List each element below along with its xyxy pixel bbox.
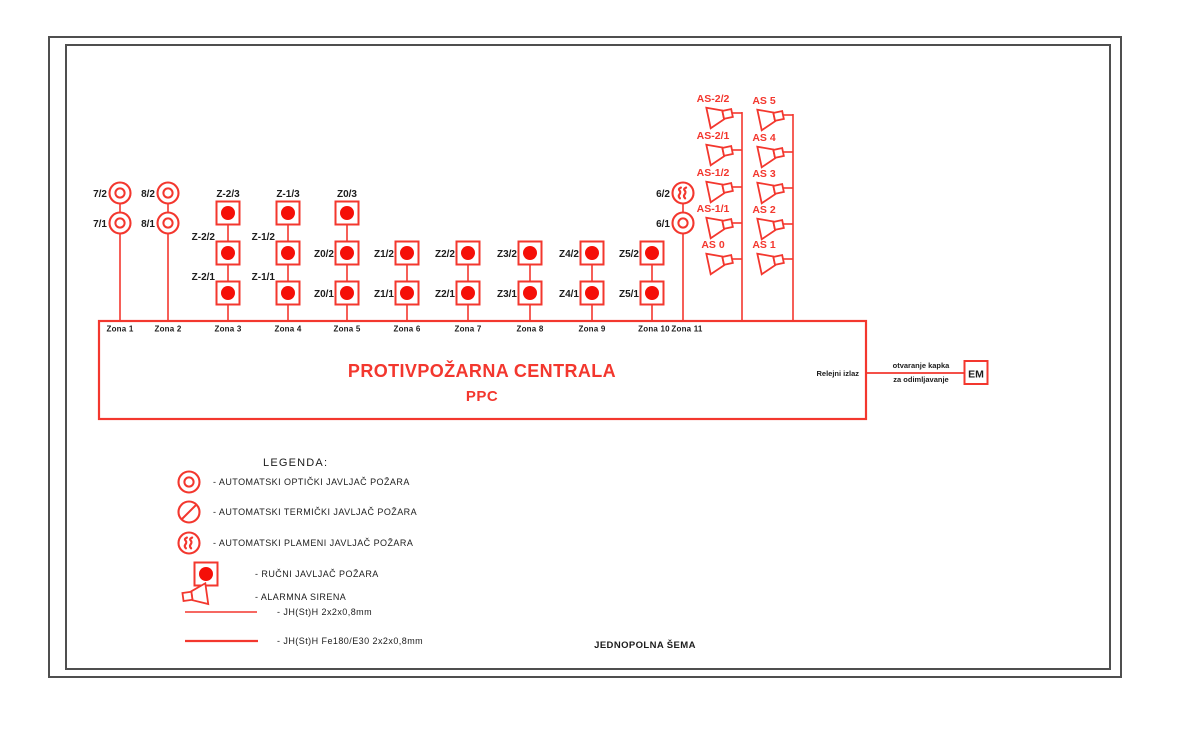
device-label: 8/1 [141, 219, 155, 230]
em-device-label: EM [968, 369, 984, 381]
device-label: Z-1/1 [252, 272, 276, 283]
device-label: Z4/2 [559, 249, 579, 260]
manual-call-point-icon [277, 242, 300, 265]
device-label: Z-2/1 [192, 272, 216, 283]
siren-bus-2: AS 5AS 4AS 3AS 2AS 1 [752, 95, 793, 321]
zone-zona-7: Z2/2Z2/1Zona 7 [435, 242, 482, 334]
siren-icon [757, 178, 785, 204]
siren-bus-1: AS-2/2AS-2/1AS-1/2AS-1/1AS 0 [697, 93, 742, 321]
manual-call-point-icon [336, 202, 359, 225]
optical-detector-icon [179, 472, 200, 493]
zone-zona-1: 7/27/1Zona 1 [93, 183, 134, 334]
device-label: 7/2 [93, 189, 107, 200]
optical-detector-icon [673, 213, 694, 234]
manual-call-point-icon [217, 282, 240, 305]
device-label: Z-1/2 [252, 232, 276, 243]
siren-label: AS 5 [752, 95, 776, 107]
zone-label: Zona 9 [579, 325, 606, 334]
siren-icon [757, 142, 785, 168]
drawing-sheet: 7/27/1Zona 18/28/1Zona 2Z-2/3Z-2/2Z-2/1Z… [0, 0, 1200, 746]
siren-icon [706, 177, 734, 203]
thermal-detector-icon [179, 502, 200, 523]
manual-call-point-icon [641, 242, 664, 265]
legend-title: LEGENDA: [263, 457, 328, 469]
device-label: 6/2 [656, 189, 670, 200]
zone-zona-2: 8/28/1Zona 2 [141, 183, 182, 334]
legend-item: - JH(St)H 2x2x0,8mm [185, 607, 372, 617]
legend-text: - AUTOMATSKI OPTIČKI JAVLJAČ POŽARA [213, 477, 410, 487]
siren-label: AS-2/1 [697, 130, 730, 142]
manual-call-point-icon [641, 282, 664, 305]
zone-label: Zona 7 [455, 325, 482, 334]
device-label: Z3/2 [497, 249, 517, 260]
zone-label: Zona 10 [638, 325, 670, 334]
zone-zona-9: Z4/2Z4/1Zona 9 [559, 242, 606, 334]
device-label: Z-2/3 [216, 189, 240, 200]
manual-call-point-icon [581, 282, 604, 305]
zone-label: Zona 6 [394, 325, 421, 334]
manual-call-point-icon [457, 242, 480, 265]
siren-icon [706, 249, 734, 275]
zone-zona-5: Z0/3Z0/2Z0/1Zona 5 [314, 189, 361, 334]
legend-item: - JH(St)H Fe180/E30 2x2x0,8mm [185, 636, 423, 646]
legend-item: - ALARMNA SIRENA [182, 583, 347, 607]
siren-icon [706, 213, 734, 239]
zone-label: Zona 5 [334, 325, 361, 334]
manual-call-point-icon [519, 242, 542, 265]
siren-icon [182, 583, 209, 607]
siren-label: AS 1 [752, 239, 776, 251]
device-label: Z-2/2 [192, 232, 216, 243]
siren-icon [757, 105, 785, 131]
optical-detector-icon [110, 213, 131, 234]
manual-call-point-icon [277, 202, 300, 225]
zone-label: Zona 3 [215, 325, 242, 334]
manual-call-point-icon [217, 242, 240, 265]
device-label: Z1/1 [374, 289, 394, 300]
optical-detector-icon [158, 213, 179, 234]
legend-item: - RUČNI JAVLJAČ POŽARA [195, 563, 379, 586]
ppc-subtitle: PPC [466, 388, 498, 405]
device-label: Z3/1 [497, 289, 517, 300]
siren-label: AS-1/1 [697, 203, 730, 215]
legend-text: - JH(St)H Fe180/E30 2x2x0,8mm [277, 636, 423, 646]
manual-call-point-icon [457, 282, 480, 305]
legend-text: - AUTOMATSKI TERMIČKI JAVLJAČ POŽARA [213, 507, 417, 517]
zone-zona-3: Z-2/3Z-2/2Z-2/1Zona 3 [192, 189, 242, 334]
manual-call-point-icon [277, 282, 300, 305]
zone-zona-6: Z1/2Z1/1Zona 6 [374, 242, 421, 334]
legend-text: - RUČNI JAVLJAČ POŽARA [255, 569, 379, 579]
device-label: 7/1 [93, 219, 107, 230]
manual-call-point-icon [336, 242, 359, 265]
optical-detector-icon [110, 183, 131, 204]
flame-detector-icon [179, 533, 200, 554]
zone-label: Zona 8 [517, 325, 544, 334]
device-label: 8/2 [141, 189, 155, 200]
optical-detector-icon [158, 183, 179, 204]
siren-label: AS 2 [752, 204, 776, 216]
manual-call-point-icon [519, 282, 542, 305]
siren-label: AS 3 [752, 168, 776, 180]
device-label: Z1/2 [374, 249, 394, 260]
siren-label: AS 4 [752, 132, 776, 144]
zone-zona-10: Z5/2Z5/1Zona 10 [619, 242, 670, 334]
schematic-canvas: 7/27/1Zona 18/28/1Zona 2Z-2/3Z-2/2Z-2/1Z… [0, 0, 1200, 746]
siren-icon [706, 103, 734, 129]
device-label: Z4/1 [559, 289, 579, 300]
manual-call-point-icon [336, 282, 359, 305]
zone-zona-4: Z-1/3Z-1/2Z-1/1Zona 4 [252, 189, 302, 334]
zone-label: Zona 4 [275, 325, 302, 334]
zone-label: Zona 2 [155, 325, 182, 334]
legend-item: - AUTOMATSKI TERMIČKI JAVLJAČ POŽARA [179, 502, 418, 523]
device-label: Z0/2 [314, 249, 334, 260]
legend-text: - ALARMNA SIRENA [255, 592, 346, 602]
zone-label: Zona 1 [107, 325, 134, 334]
flame-detector-icon [673, 183, 694, 204]
device-label: Z5/2 [619, 249, 639, 260]
siren-label: AS 0 [701, 239, 725, 251]
legend-group: - AUTOMATSKI OPTIČKI JAVLJAČ POŽARA- AUT… [179, 472, 424, 647]
device-label: Z5/1 [619, 289, 639, 300]
manual-call-point-icon [217, 202, 240, 225]
relay-wire-caption-1: otvaranje kapka [893, 361, 951, 370]
siren-icon [706, 140, 734, 166]
siren-icon [757, 249, 785, 275]
siren-label: AS-1/2 [697, 167, 730, 179]
sirens-group: AS-2/2AS-2/1AS-1/2AS-1/1AS 0AS 5AS 4AS 3… [697, 93, 793, 321]
device-label: Z-1/3 [276, 189, 300, 200]
device-label: Z0/1 [314, 289, 334, 300]
zones-group: 7/27/1Zona 18/28/1Zona 2Z-2/3Z-2/2Z-2/1Z… [93, 183, 703, 334]
zone-zona-8: Z3/2Z3/1Zona 8 [497, 242, 544, 334]
zone-label: Zona 11 [671, 325, 703, 334]
relay-output-label: Relejni izlaz [816, 369, 859, 378]
legend-text: - AUTOMATSKI PLAMENI JAVLJAČ POŽARA [213, 538, 413, 548]
siren-label: AS-2/2 [697, 93, 730, 105]
relay-wire-caption-2: za odimljavanje [893, 375, 948, 384]
manual-call-point-icon [396, 282, 419, 305]
siren-icon [757, 214, 785, 240]
device-label: 6/1 [656, 219, 670, 230]
legend-item: - AUTOMATSKI OPTIČKI JAVLJAČ POŽARA [179, 472, 410, 493]
legend-text: - JH(St)H 2x2x0,8mm [277, 607, 372, 617]
manual-call-point-icon [581, 242, 604, 265]
manual-call-point-icon [396, 242, 419, 265]
drawing-type-label: JEDNOPOLNA ŠEMA [594, 639, 696, 651]
device-label: Z2/2 [435, 249, 455, 260]
sheet-inner-frame [66, 45, 1110, 669]
device-label: Z0/3 [337, 189, 357, 200]
device-label: Z2/1 [435, 289, 455, 300]
ppc-title: PROTIVPOŽARNA CENTRALA [348, 360, 616, 381]
legend-item: - AUTOMATSKI PLAMENI JAVLJAČ POŽARA [179, 533, 414, 554]
